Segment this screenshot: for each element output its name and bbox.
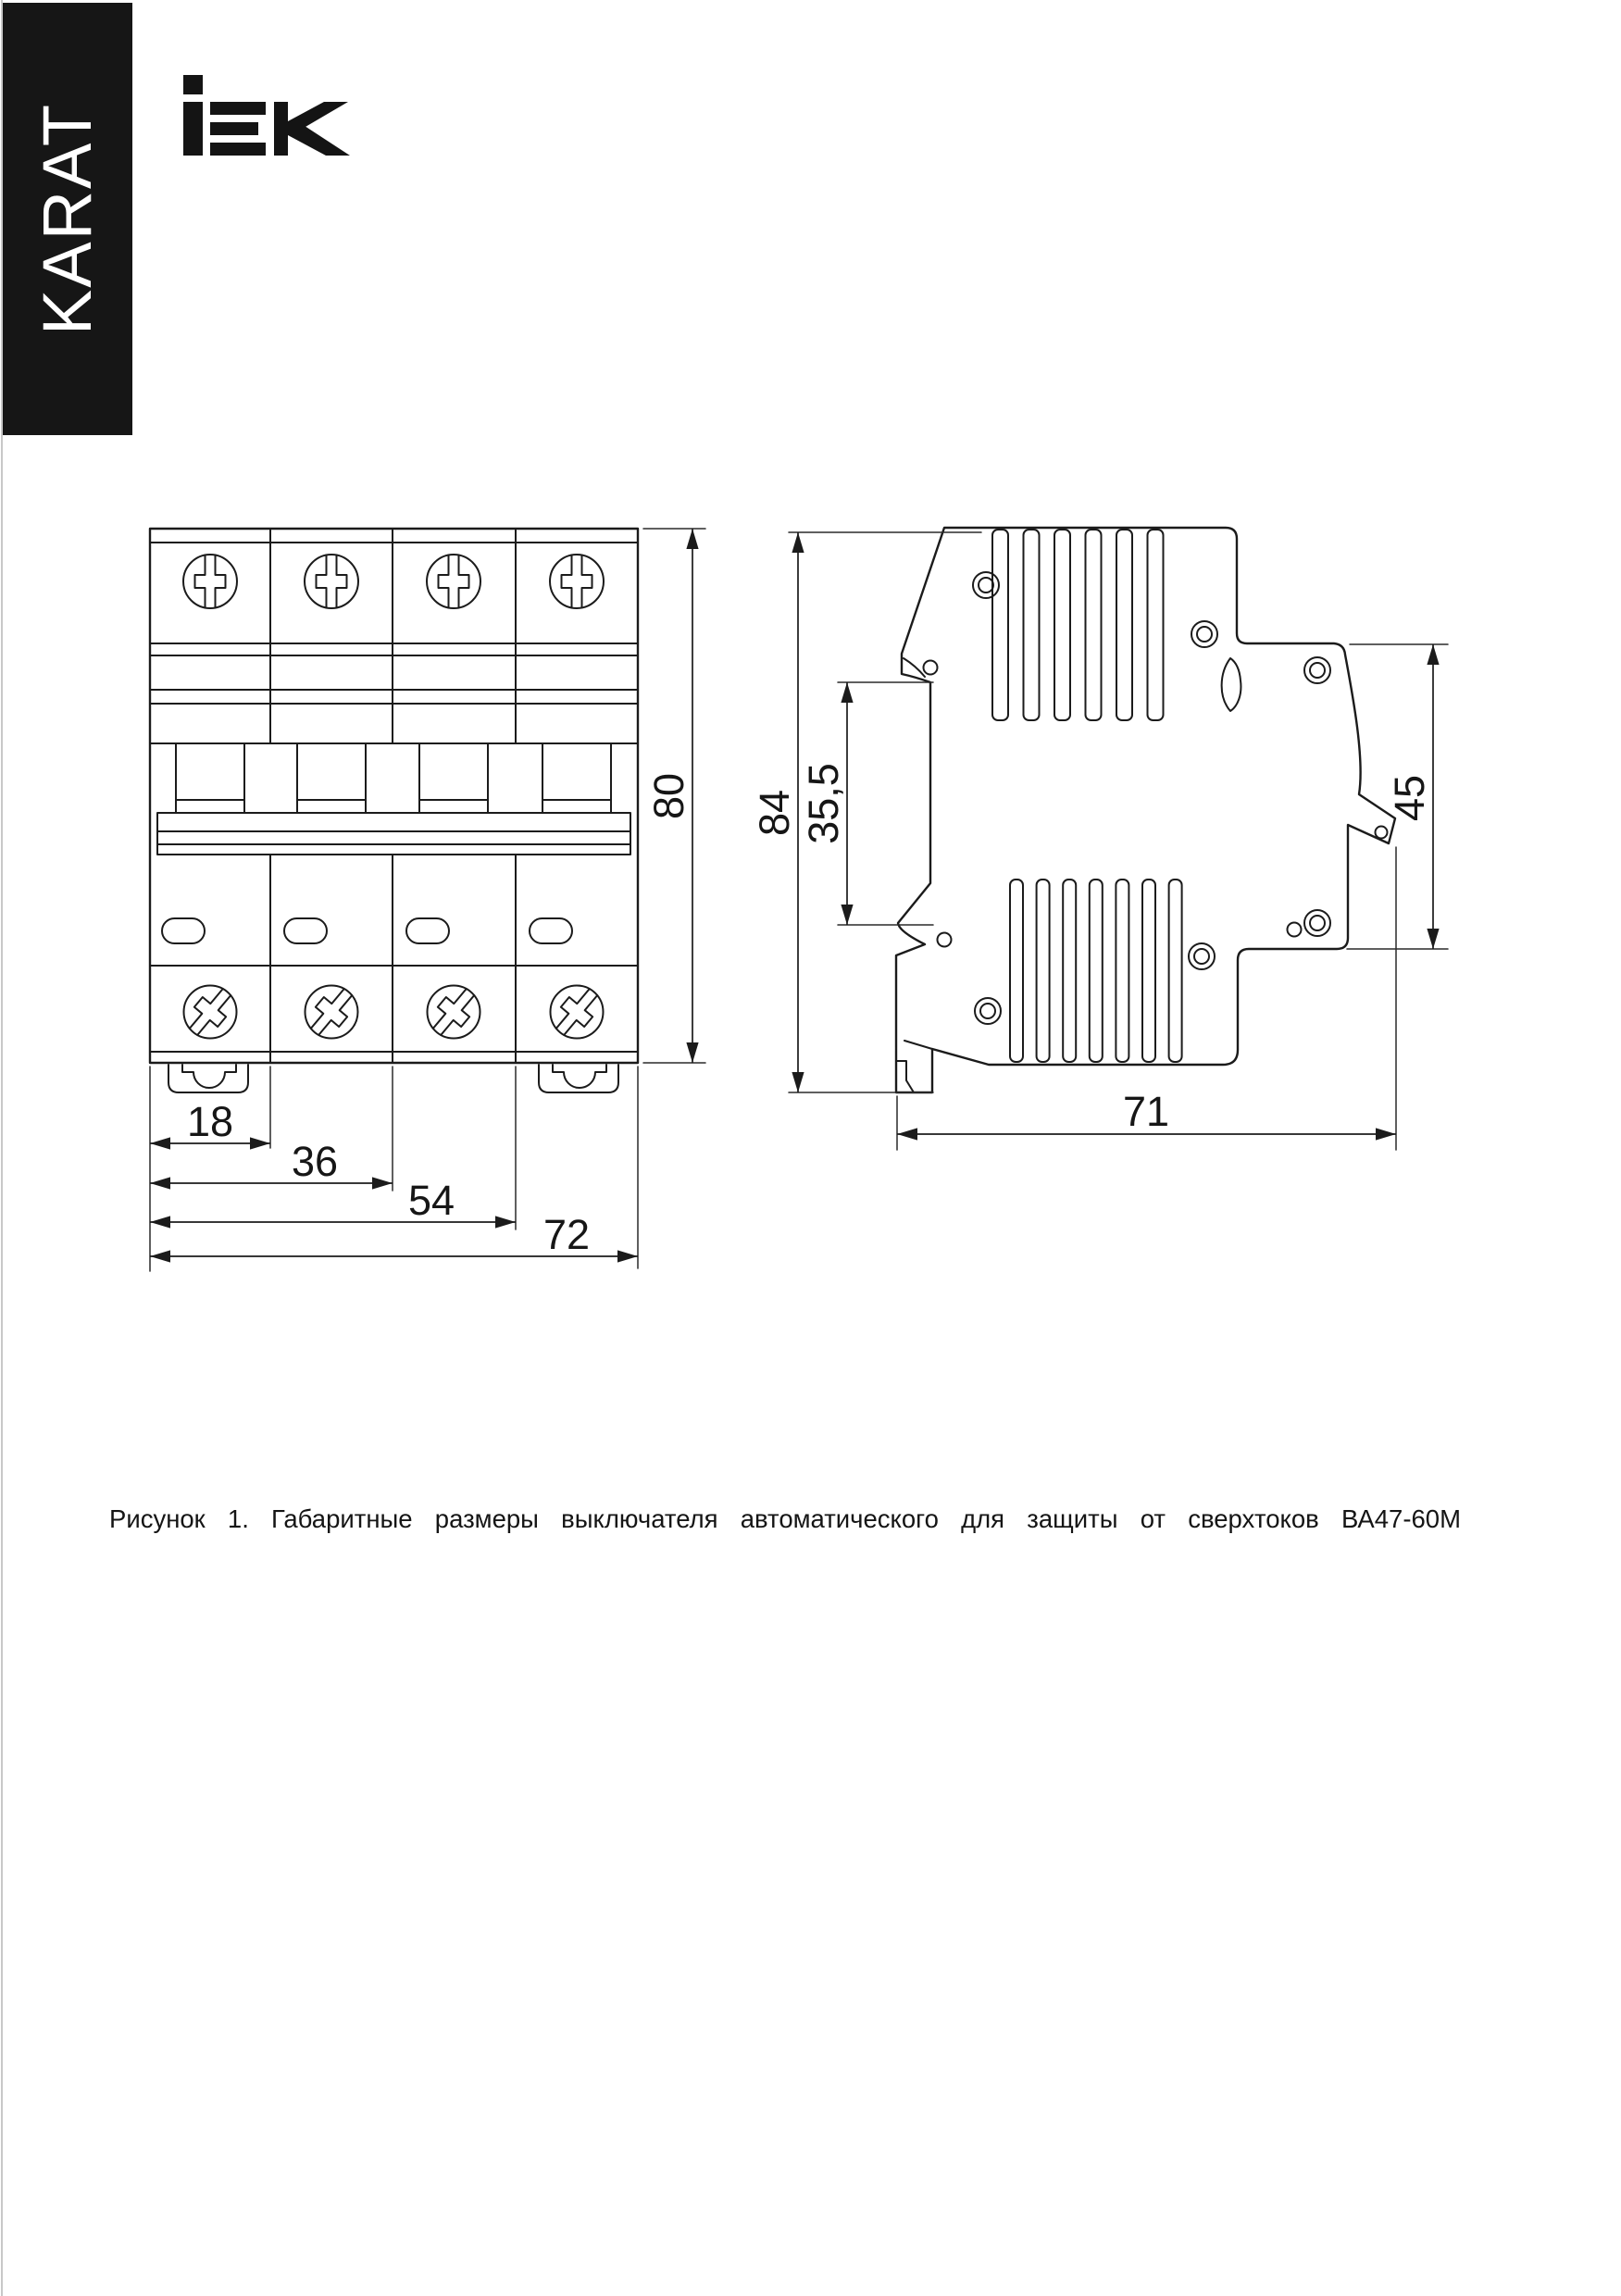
- pin-hole: [938, 933, 952, 947]
- clamp-hole: [1376, 827, 1388, 839]
- technical-drawing: 80 18 36 54 72: [0, 491, 1621, 1370]
- screw-terminal-bottom-icon: [425, 982, 481, 1042]
- dim-module-2-label: 36: [292, 1138, 338, 1185]
- din-clip: [168, 1065, 248, 1092]
- screw-terminal-top-icon: [427, 555, 480, 608]
- screw-terminal-bottom-icon: [303, 982, 359, 1042]
- vent-slots-bottom: [1010, 880, 1182, 1062]
- state-window: [284, 918, 327, 943]
- toggle-lever: [297, 743, 366, 813]
- front-view: [150, 529, 638, 1092]
- pole-dividers: [270, 529, 516, 1063]
- pin-hole: [1288, 923, 1302, 937]
- dim-module-1-label: 18: [187, 1098, 233, 1145]
- dim-front-widths: 18 36 54 72: [150, 1067, 638, 1271]
- dim-module-3-label: 54: [408, 1177, 455, 1224]
- side-outline: [896, 528, 1395, 1092]
- side-view: [896, 528, 1395, 1092]
- toggle-lever: [542, 743, 611, 813]
- dim-terminal-zone-label: 45: [1386, 775, 1433, 821]
- screw-terminal-top-icon: [550, 555, 604, 608]
- dim-side-height: 84: [751, 532, 981, 1092]
- karat-label: KARAT: [29, 103, 107, 335]
- toggle-lever: [176, 743, 244, 813]
- front-body: [150, 529, 638, 1063]
- interlock-bar: [157, 813, 630, 855]
- dim-width-label: 72: [543, 1211, 590, 1258]
- dim-depth: 71: [897, 847, 1396, 1150]
- rivet-boss: [1304, 657, 1330, 683]
- dim-depth-label: 71: [1123, 1088, 1169, 1135]
- rivet-boss: [1189, 943, 1215, 969]
- toggle-lever: [419, 743, 488, 813]
- dim-side-height-label: 84: [751, 790, 798, 836]
- screw-terminal-top-icon: [305, 555, 358, 608]
- state-window: [162, 918, 205, 943]
- screw-terminal-bottom-icon: [181, 982, 238, 1042]
- state-window: [530, 918, 572, 943]
- iek-logo-glyphs: [183, 75, 350, 156]
- screw-terminal-top-icon: [183, 555, 237, 608]
- screw-terminal-bottom-icon: [548, 982, 605, 1042]
- dim-din-recess-label: 35,5: [800, 763, 847, 844]
- din-clip: [539, 1065, 618, 1092]
- dim-front-height: 80: [643, 529, 705, 1063]
- pin-hole: [924, 661, 938, 675]
- rivet-boss: [1304, 910, 1330, 936]
- kidney-slot: [1222, 658, 1241, 711]
- figure-caption: Рисунок 1. Габаритные размеры выключател…: [109, 1502, 1461, 1536]
- state-window: [406, 918, 449, 943]
- rivet-boss: [1191, 621, 1217, 647]
- front-section-lines: [150, 643, 638, 1052]
- rivet-boss: [973, 572, 999, 598]
- iek-logo: [181, 70, 354, 159]
- document-page: KARAT: [0, 0, 1621, 2296]
- dim-front-height-label: 80: [645, 773, 692, 819]
- karat-banner: KARAT: [3, 3, 132, 435]
- vent-slots-top: [992, 530, 1164, 720]
- dim-din-recess: 35,5: [800, 682, 933, 925]
- rivet-boss: [975, 998, 1001, 1024]
- din-latch-detail: [896, 658, 932, 1092]
